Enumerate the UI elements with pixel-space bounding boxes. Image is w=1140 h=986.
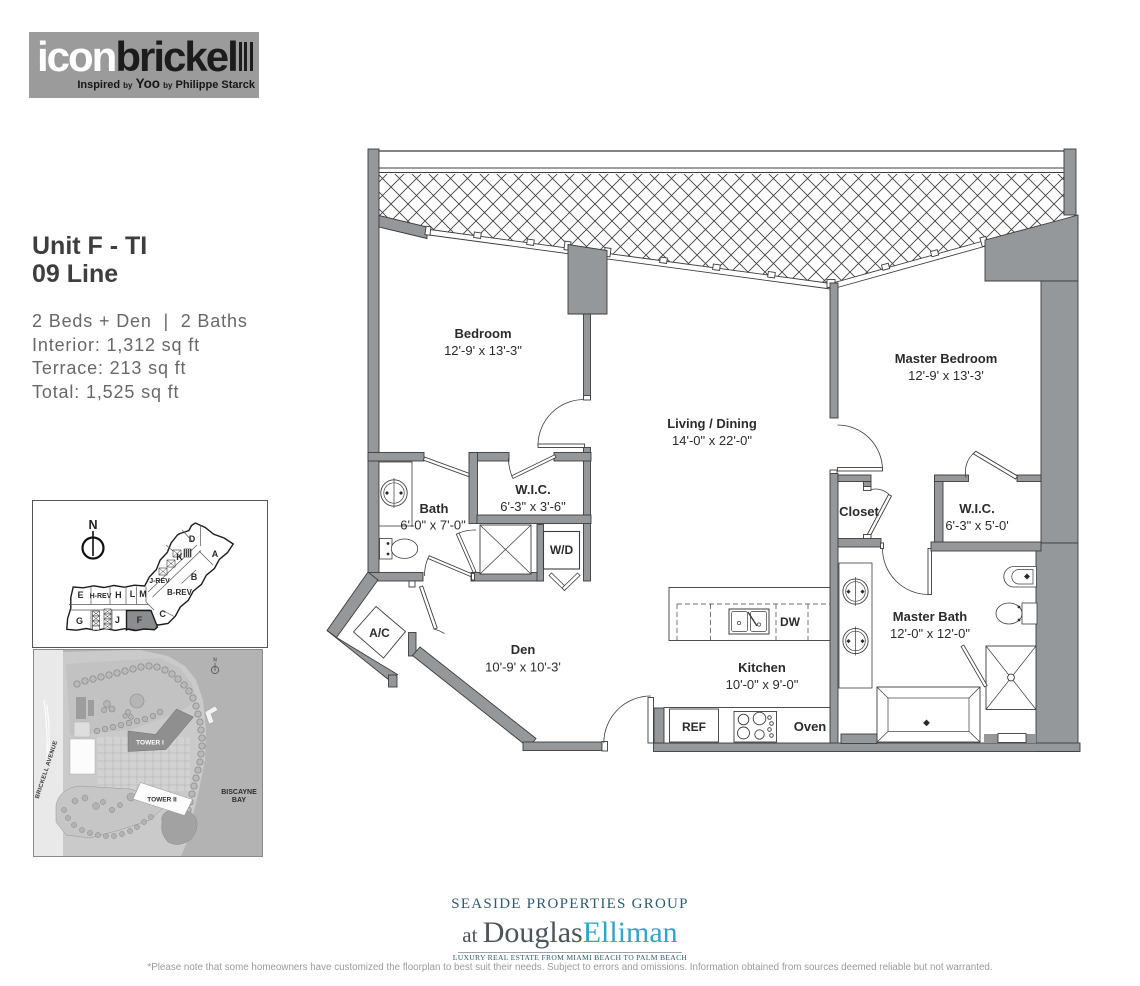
svg-text:Kitchen: Kitchen: [738, 660, 786, 675]
svg-text:F: F: [137, 615, 143, 625]
svg-text:TOWER II: TOWER II: [147, 797, 177, 804]
svg-text:Oven: Oven: [794, 719, 827, 734]
svg-text:Den: Den: [511, 642, 536, 657]
svg-text:REF: REF: [682, 720, 706, 734]
svg-text:A: A: [212, 549, 219, 559]
svg-text:Closet: Closet: [839, 504, 879, 519]
svg-text:J: J: [115, 615, 120, 625]
svg-text:Master Bath: Master Bath: [893, 609, 967, 624]
svg-text:W.I.C.: W.I.C.: [959, 501, 994, 516]
svg-text:12'-9' x 13'-3': 12'-9' x 13'-3': [908, 368, 984, 383]
svg-text:G: G: [76, 616, 83, 626]
svg-text:12'-9' x 13'-3": 12'-9' x 13'-3": [444, 343, 522, 358]
svg-text:Bath: Bath: [420, 501, 449, 516]
svg-text:Bedroom: Bedroom: [454, 326, 511, 341]
svg-text:6'-3" x 3'-6": 6'-3" x 3'-6": [500, 499, 566, 514]
svg-text:A/C: A/C: [369, 626, 390, 640]
svg-text:TOWER I: TOWER I: [136, 740, 164, 747]
svg-text:N: N: [213, 658, 217, 664]
svg-text:BISCAYNE: BISCAYNE: [221, 789, 257, 796]
svg-text:M: M: [139, 589, 147, 599]
svg-text:H-REV: H-REV: [90, 593, 112, 600]
svg-text:W.I.C.: W.I.C.: [515, 482, 550, 497]
svg-text:Living / Dining: Living / Dining: [667, 416, 757, 431]
svg-text:Master Bedroom: Master Bedroom: [895, 351, 998, 366]
svg-text:6'-0" x 7'-0": 6'-0" x 7'-0": [400, 518, 466, 533]
svg-text:E: E: [77, 590, 83, 600]
svg-text:B: B: [191, 572, 198, 582]
svg-text:10'-0" x 9'-0": 10'-0" x 9'-0": [726, 677, 799, 692]
svg-text:DW: DW: [780, 615, 801, 629]
svg-text:N: N: [88, 518, 97, 532]
svg-text:14'-0" x 22'-0": 14'-0" x 22'-0": [672, 433, 752, 448]
svg-text:6'-3" x 5'-0': 6'-3" x 5'-0': [945, 518, 1008, 533]
svg-text:C: C: [159, 609, 166, 619]
svg-text:B-REV: B-REV: [167, 588, 193, 597]
svg-text:D: D: [189, 534, 196, 544]
svg-text:H: H: [115, 590, 122, 600]
svg-text:K: K: [176, 552, 183, 562]
svg-text:L: L: [130, 589, 136, 599]
svg-text:J-REV: J-REV: [149, 578, 170, 585]
svg-text:12'-0" x 12'-0": 12'-0" x 12'-0": [890, 626, 970, 641]
svg-text:10'-9' x 10'-3': 10'-9' x 10'-3': [485, 660, 561, 675]
svg-text:BAY: BAY: [232, 797, 246, 804]
svg-text:W/D: W/D: [550, 543, 574, 557]
